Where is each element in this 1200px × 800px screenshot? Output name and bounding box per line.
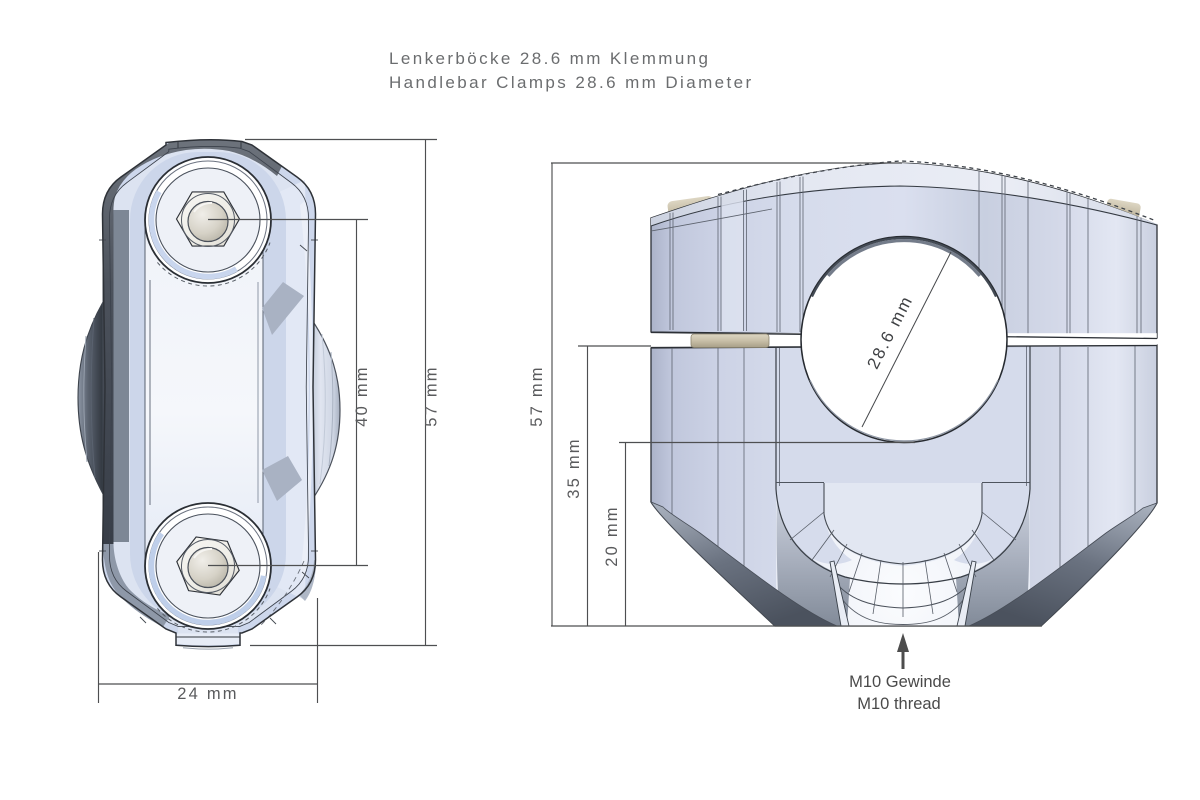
svg-text:57 mm: 57 mm [423, 365, 441, 426]
svg-text:Lenkerböcke 28.6 mm Klemmung: Lenkerböcke 28.6 mm Klemmung [389, 49, 710, 68]
svg-text:M10 thread: M10 thread [857, 695, 940, 713]
svg-text:20 mm: 20 mm [603, 505, 621, 566]
svg-text:Handlebar Clamps 28.6 mm Diame: Handlebar Clamps 28.6 mm Diameter [389, 73, 754, 92]
svg-text:40 mm: 40 mm [353, 365, 371, 426]
svg-text:57 mm: 57 mm [528, 365, 546, 426]
svg-text:35 mm: 35 mm [565, 437, 583, 498]
svg-text:M10 Gewinde: M10 Gewinde [849, 673, 951, 691]
svg-text:24 mm: 24 mm [177, 685, 238, 703]
